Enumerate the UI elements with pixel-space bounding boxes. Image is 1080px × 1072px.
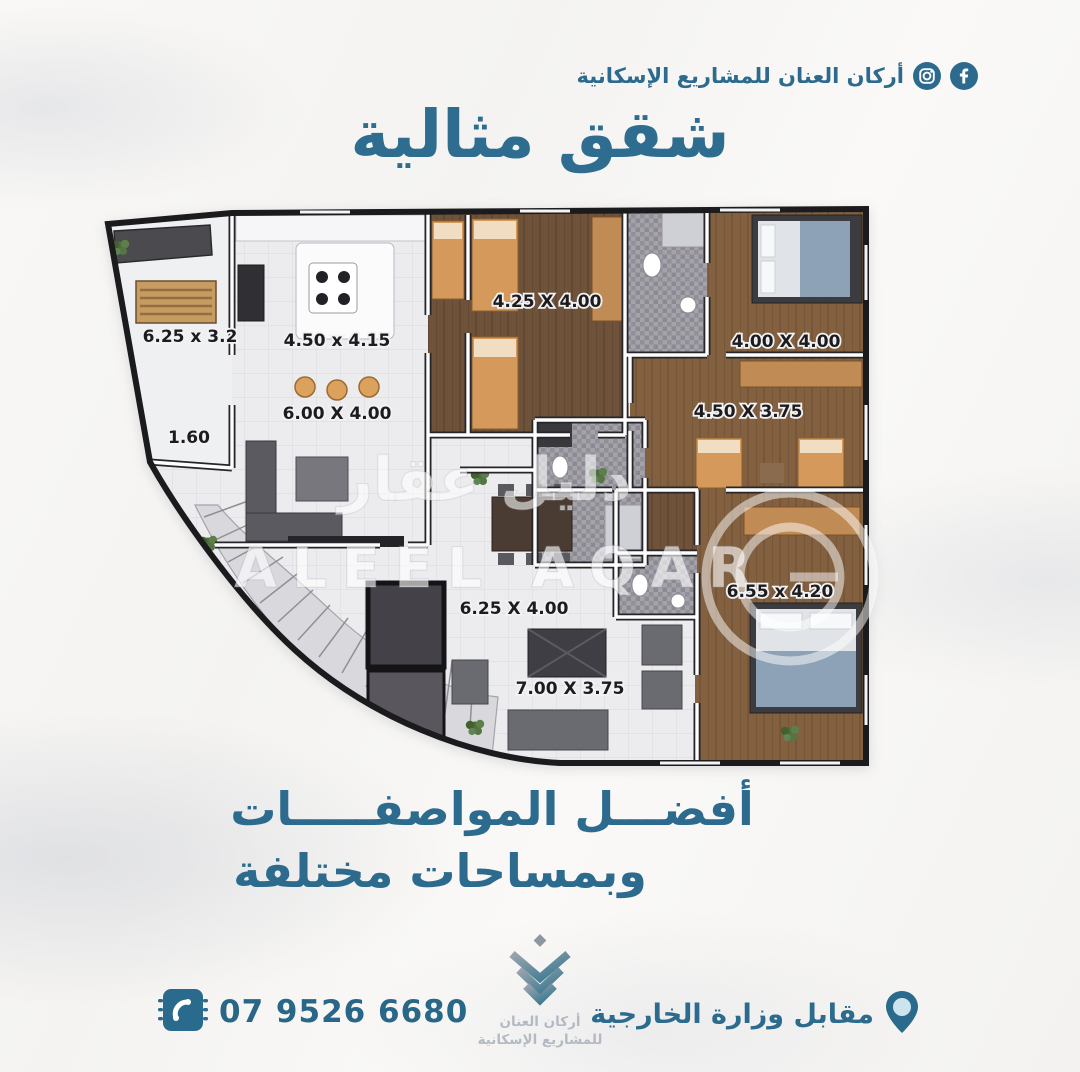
nightstand (760, 463, 784, 483)
floor-plan: دليل عقار ALEEL AQAR 6.25 x 3.2 1.60 4.5… (100, 205, 880, 775)
pillow (474, 221, 516, 239)
map-pin-icon (884, 990, 920, 1038)
bar-stools (295, 377, 379, 400)
phone-group: 07 9526 6680 (158, 988, 468, 1036)
sink (680, 297, 696, 313)
poster: أركان العنان للمشاريع الإسكانية شقق مثال… (0, 0, 1080, 1072)
dim-balcony-depth: 1.60 (168, 428, 210, 448)
kitchen-counter (236, 215, 426, 241)
armchair (452, 660, 488, 704)
location-group: مقابل وزارة الخارجية (590, 990, 920, 1038)
dim-dining: 6.25 X 4.00 (460, 599, 569, 619)
watermark-latin: ALEEL AQAR (234, 536, 765, 600)
pillow (800, 440, 842, 453)
pillow (474, 339, 516, 357)
phone-book-icon (158, 988, 208, 1036)
social-bar: أركان العنان للمشاريع الإسكانية (577, 58, 978, 94)
dim-bedroom-right-bottom: 6.55 x 4.20 (727, 582, 834, 602)
balcony-table (136, 281, 216, 323)
dim-balcony: 6.25 x 3.2 (143, 327, 238, 347)
shower-tray (662, 213, 704, 247)
dim-family: 7.00 X 3.75 (516, 679, 625, 699)
pillow (698, 440, 740, 453)
watermark-arabic: دليل عقار (335, 445, 632, 515)
phone-number: 07 9526 6680 (219, 994, 468, 1030)
wardrobe (740, 361, 862, 387)
facebook-icon (950, 62, 978, 90)
kitchen-stove (309, 263, 357, 313)
kitchen-fridge (238, 265, 264, 321)
pillow (761, 225, 775, 257)
diamond-chevron-logo-icon (500, 934, 580, 1010)
armchair (642, 625, 682, 665)
armchair (642, 671, 682, 709)
plant (336, 726, 354, 741)
tagline-line1: أفضـــل المواصفـــــات (230, 782, 754, 836)
dim-bedroom-top: 4.25 X 4.00 (493, 292, 602, 312)
bed-blanket (800, 221, 850, 297)
dim-bedroom-right-mid: 4.50 X 3.75 (694, 402, 803, 422)
dim-bedroom-right-top: 4.00 X 4.00 (732, 332, 841, 352)
tagline-line2: وبمساحات مختلفة (233, 844, 647, 898)
brand-name: أركان العنان للمشاريع الإسكانية (577, 58, 904, 94)
dim-living: 6.00 X 4.00 (283, 404, 392, 424)
toilet (643, 253, 661, 277)
location-text: مقابل وزارة الخارجية (590, 999, 874, 1030)
pillow (761, 261, 775, 293)
family-sofa (508, 710, 608, 750)
dim-kitchen: 4.50 x 4.15 (284, 331, 391, 351)
poster-title: شقق مثالية (0, 96, 1080, 173)
pillow (434, 223, 462, 239)
instagram-icon (913, 62, 941, 90)
